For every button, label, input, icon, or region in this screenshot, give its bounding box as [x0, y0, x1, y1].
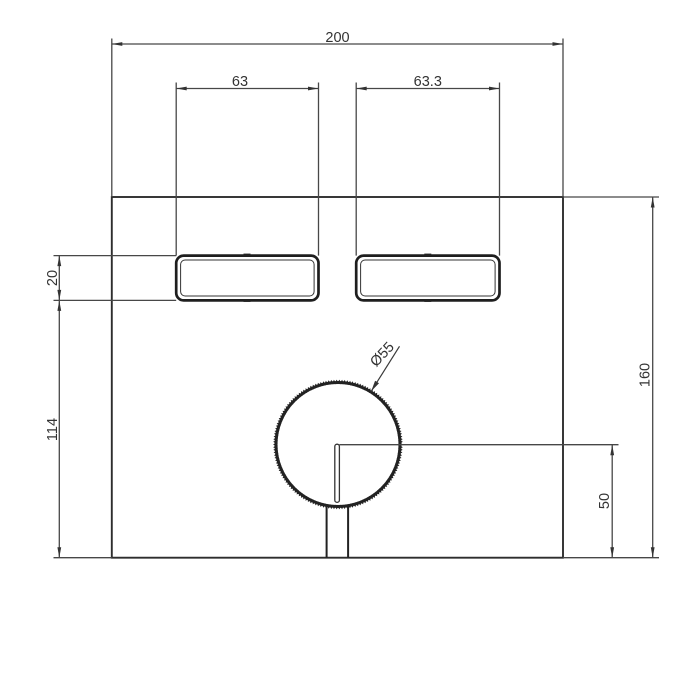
svg-text:20: 20: [45, 270, 61, 286]
svg-text:63: 63: [232, 74, 248, 90]
svg-text:200: 200: [325, 30, 349, 46]
svg-text:50: 50: [597, 493, 613, 509]
svg-text:63.3: 63.3: [414, 74, 442, 90]
svg-text:160: 160: [638, 363, 654, 387]
svg-text:114: 114: [45, 418, 61, 441]
